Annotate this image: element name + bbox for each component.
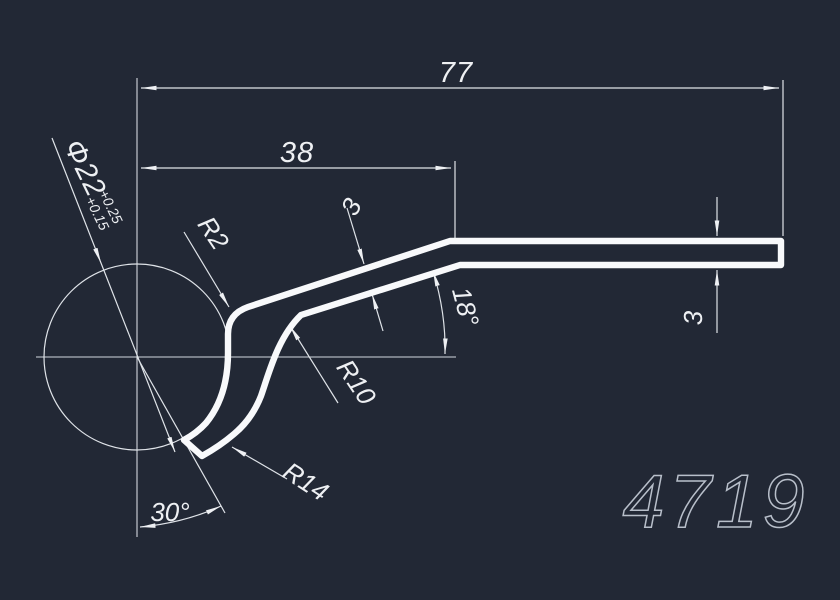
cad-drawing-view: 77 38 R2 3 18° R10 R14 30° 3 Φ22 +0.25 +… bbox=[0, 0, 840, 600]
diameter-label-group: Φ22 +0.25 +0.15 bbox=[57, 135, 127, 233]
tip-angle-reference-line bbox=[137, 357, 225, 513]
angle-30-label: 30° bbox=[150, 497, 189, 527]
part-outline bbox=[184, 241, 781, 456]
dim-77-label: 77 bbox=[439, 57, 474, 89]
dim-38-label: 38 bbox=[280, 137, 314, 169]
drawing-canvas: 77 38 R2 3 18° R10 R14 30° 3 Φ22 +0.25 +… bbox=[0, 0, 840, 600]
angle-18-label: 18° bbox=[446, 284, 485, 330]
diameter-leader-line bbox=[52, 138, 175, 452]
dim-thickness-slant-line-lower bbox=[372, 294, 383, 331]
dim-thickness-end-label: 3 bbox=[678, 310, 708, 325]
radius-r10-label: R10 bbox=[331, 354, 383, 411]
part-number: 4719 bbox=[623, 459, 810, 543]
radius-r14-leader bbox=[232, 447, 287, 479]
radius-r14-label: R14 bbox=[278, 456, 334, 507]
radius-r10-leader bbox=[290, 326, 338, 403]
dim-thickness-slant-label: 3 bbox=[334, 193, 368, 220]
radius-r2-label: R2 bbox=[192, 211, 236, 256]
angle-18-arc bbox=[433, 271, 445, 354]
